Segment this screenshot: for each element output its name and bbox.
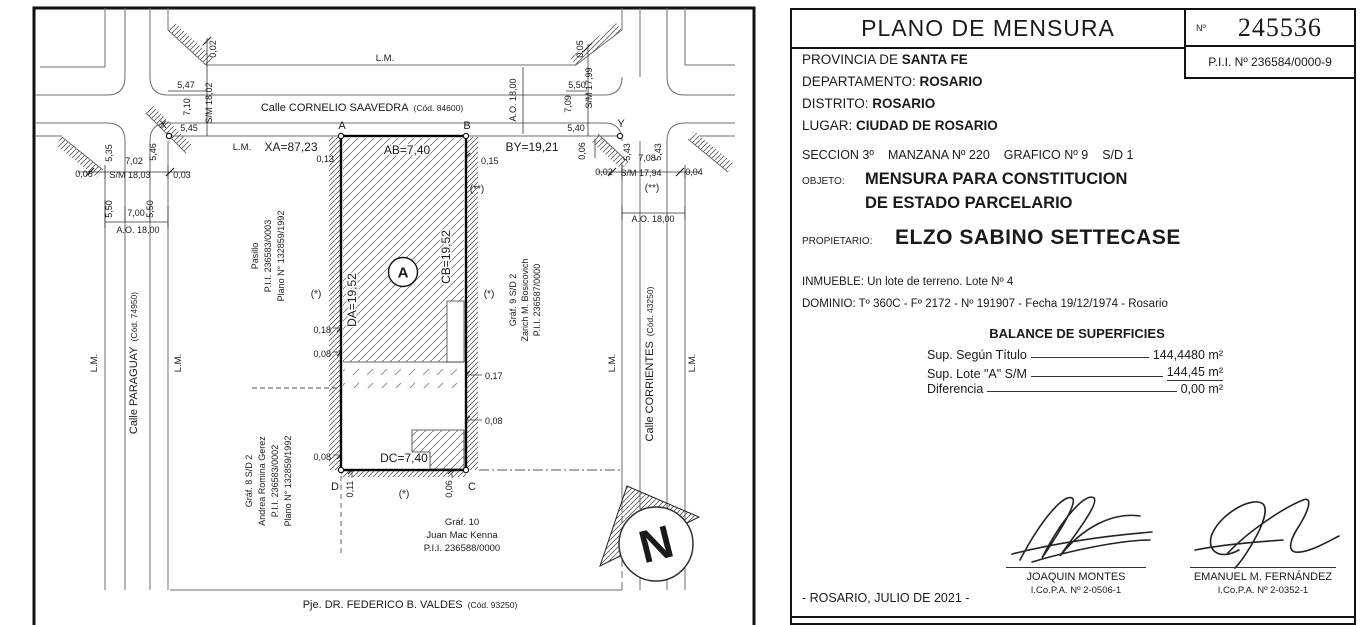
distrito-label: DISTRITO: <box>802 96 872 111</box>
provincia-value: SANTA FE <box>902 52 968 67</box>
dim-lot-tr: 0,15 <box>481 156 499 166</box>
lm-label-cor-e: L.M. <box>687 354 698 372</box>
dim-rt-3: 5,40 <box>567 123 585 133</box>
surveyor-name-montes: JOAQUIN MONTES <box>1006 571 1146 583</box>
point-d: D <box>331 481 339 493</box>
surveyor-reg-montes: I.Co.P.A. Nº 2-0506-1 <box>1006 585 1146 596</box>
balance-row-diferencia: Diferencia 0,00 m² <box>927 382 1223 396</box>
dim-e-3: 5,43 <box>653 143 663 161</box>
dim-lot-tl: 0,13 <box>316 154 334 164</box>
objeto-line1: MENSURA PARA CONSTITUCION <box>865 170 1127 189</box>
surveyor-name-fernandez: EMANUEL M. FERNÁNDEZ <box>1190 571 1336 583</box>
dim-c-ao: A.O. 18,00 <box>631 214 674 224</box>
dim-lot-l2: 0,08 <box>313 349 331 359</box>
lot-notch <box>447 301 464 362</box>
neighbor-gerez-line1: Gráf. 8 S/D 2 <box>244 455 254 508</box>
dim-rt-sm: S/M 17,99 <box>584 67 594 108</box>
point-y: Y <box>617 118 625 130</box>
neighbor-mackenna-line1: Gráf. 10 <box>445 517 479 528</box>
propietario-label: PROPIETARIO: <box>802 236 872 247</box>
dim-p-3: 5,50 <box>145 200 155 218</box>
neighbor-gerez-line3: P.I.I. 236583/0002 <box>270 445 280 517</box>
balance-title: BALANCE DE SUPERFICIES <box>892 326 1262 341</box>
neighbor-mackenna-line3: P.I.I. 236588/0000 <box>424 543 500 554</box>
lm-label-south: L.M. <box>233 142 251 153</box>
objeto-label: OBJETO: <box>802 176 845 187</box>
balance-row-diferencia-leader <box>987 391 1176 392</box>
dim-dc: DC=7,40 <box>380 451 428 465</box>
seccion-value: SECCION 3º <box>802 148 874 162</box>
mark-star-bottom: (*) <box>399 489 410 500</box>
pii-number: P.I.I. Nº 236584/0000-9 <box>1186 47 1354 77</box>
departamento-label: DEPARTAMENTO: <box>802 74 920 89</box>
dim-ab: AB=7,40 <box>384 143 431 157</box>
balance-row-titulo-label: Sup. Según Título <box>927 348 1027 362</box>
dim-e-off2: 0,04 <box>685 167 703 177</box>
surveyor-reg-fernandez: I.Co.P.A. Nº 2-0352-1 <box>1190 585 1336 596</box>
balance-row-diferencia-label: Diferencia <box>927 382 983 396</box>
point-c: C <box>468 481 476 493</box>
dim-lot-l1: 0,18 <box>313 325 331 335</box>
neighbor-bosicovich-line2: Zarich M. Bosicovich <box>520 258 530 341</box>
dim-s-ao: A.O. 18,00 <box>508 78 518 121</box>
signature-line-montes <box>1006 567 1146 568</box>
field-seccion-row: SECCION 3º MANZANA Nº 220 GRAFICO Nº 9 S… <box>802 148 1133 162</box>
lot-label: A <box>398 265 409 282</box>
dim-e-1: 5,43 <box>622 143 632 161</box>
lugar-label: LUGAR: <box>802 118 856 133</box>
survey-plan-sheet: A N Calle CORNELIO SAAVEDRA(Cód. 84600) … <box>0 0 1363 625</box>
north-compass: N <box>600 486 699 581</box>
balance-row-lote: Sup. Lote "A" S/M 144,45 m² <box>927 365 1223 381</box>
neighbor-bosicovich-line3: P.I.I. 236587/0000 <box>532 264 542 336</box>
field-departamento: DEPARTAMENTO: ROSARIO <box>802 74 983 89</box>
plan-number-box: Nº 245536 P.I.I. Nº 236584/0000-9 <box>1184 10 1354 79</box>
plan-number-value: 245536 <box>1206 13 1354 43</box>
point-b: B <box>463 120 470 132</box>
dim-lot-r1: 0,17 <box>485 371 503 381</box>
dim-lot-r2: 0,08 <box>485 416 503 426</box>
manzana-value: MANZANA Nº 220 <box>888 148 990 162</box>
mark-dstar-lot: (**) <box>470 184 484 195</box>
balance-row-titulo-leader <box>1031 357 1149 358</box>
footer-divider <box>792 616 1354 618</box>
dim-lot-br: 0,06 <box>444 480 454 498</box>
point-x: X <box>159 119 167 131</box>
dominio-line: DOMINIO: Tº 360C - Fº 2172 - Nº 191907 -… <box>802 298 1168 310</box>
lot-mid-band <box>343 362 464 388</box>
plan-number-label: Nº <box>1196 23 1206 33</box>
balance-row-lote-leader <box>1031 376 1163 377</box>
plan-number-row: Nº 245536 <box>1186 10 1354 47</box>
dim-lot-l3: 0,08 <box>313 452 331 462</box>
balance-row-diferencia-value: 0,00 m² <box>1181 382 1223 396</box>
neighbor-pasillo-line3: Plano N° 132859/1992 <box>276 211 286 302</box>
provincia-label: PROVINCIA DE <box>802 52 902 67</box>
dim-w-off2: 0,03 <box>173 170 191 180</box>
dim-by: BY=19,21 <box>505 140 558 154</box>
lot-left-wall-hatch <box>329 137 341 470</box>
distrito-value: ROSARIO <box>872 96 935 111</box>
page-title: PLANO DE MENSURA <box>792 10 1184 49</box>
neighbor-gerez-line2: Andrea Romina Gerez <box>257 436 267 526</box>
neighbor-bosicovich-line1: Gráf. 9 S/D 2 <box>508 274 518 327</box>
lm-label-cor-w: L.M. <box>607 354 618 372</box>
dim-da: DA=19,52 <box>345 273 359 327</box>
field-lugar: LUGAR: CIUDAD DE ROSARIO <box>802 118 998 133</box>
title-block: PLANO DE MENSURA Nº 245536 P.I.I. Nº 236… <box>790 8 1356 625</box>
dim-y-off: 0,06 <box>577 142 587 160</box>
lugar-value: CIUDAD DE ROSARIO <box>856 118 998 133</box>
balance-row-titulo: Sup. Según Título 144,4480 m² <box>927 348 1223 362</box>
objeto-line2: DE ESTADO PARCELARIO <box>865 194 1072 213</box>
plan-date: - ROSARIO, JULIO DE 2021 - <box>802 591 969 605</box>
dim-w-sm: S/M 18,03 <box>109 170 150 180</box>
dim-w-off1: 0,06 <box>75 169 93 179</box>
dim-p-ao: A.O. 18,00 <box>116 225 159 235</box>
dim-e-off1: 0,02 <box>595 167 613 177</box>
dim-lt-2: 7,10 <box>182 98 192 116</box>
plan-drawing: A N Calle CORNELIO SAAVEDRA(Cód. 84600) … <box>0 0 770 625</box>
street-valdes: Pje. DR. FEDERICO B. VALDES(Cód. 93250) <box>303 599 518 611</box>
dim-xa: XA=87,23 <box>264 140 317 154</box>
field-provincia: PROVINCIA DE SANTA FE <box>802 52 968 67</box>
sd-value: S/D 1 <box>1102 148 1133 162</box>
point-a: A <box>338 120 346 132</box>
propietario-value: ELZO SABINO SETTECASE <box>895 226 1181 250</box>
lm-label-pgy-w: L.M. <box>89 354 100 372</box>
dim-w-1: 5,35 <box>104 144 114 162</box>
mark-dstar-corrientes: (**) <box>645 183 659 194</box>
balance-row-lote-value: 144,45 m² <box>1167 365 1223 381</box>
dim-lot-bl: 0,11 <box>345 481 355 498</box>
inmueble-line: INMUEBLE: Un lote de terreno. Lote Nº 4 <box>802 276 1013 288</box>
dim-lt-off: 0,02 <box>208 40 218 58</box>
lm-label-pgy-e: L.M. <box>173 354 184 372</box>
dim-rt-off: 0,05 <box>575 40 585 58</box>
dim-p-2: 7,00 <box>127 208 145 218</box>
dim-e-sm: S/M 17,94 <box>620 168 661 178</box>
balance-row-lote-label: Sup. Lote "A" S/M <box>927 367 1027 381</box>
dim-lt-sm: S/M 18,02 <box>204 82 214 123</box>
lm-label-north: L.M. <box>376 53 394 64</box>
mark-star-right: (*) <box>484 289 495 300</box>
dim-lt-1: 5,47 <box>177 80 195 90</box>
neighbor-mackenna-line2: Juan Mac Kenna <box>426 530 498 541</box>
dim-p-1: 5,50 <box>104 200 114 218</box>
neighbor-pasillo-line1: Pasillo <box>250 243 260 270</box>
mark-star-left: (*) <box>311 289 322 300</box>
dim-w-3: 5,46 <box>148 143 158 161</box>
street-paraguay: Calle PARAGUAY(Cód. 74950) <box>128 292 140 434</box>
dim-cb: CB=19,52 <box>439 230 453 284</box>
balance-row-titulo-value: 144,4480 m² <box>1153 348 1223 362</box>
grafico-value: GRAFICO Nº 9 <box>1004 148 1088 162</box>
dim-w-2: 7,02 <box>125 156 143 166</box>
neighbor-gerez-line4: Plano N° 132859/1992 <box>283 436 293 527</box>
signature-fernandez <box>1187 492 1347 570</box>
street-saavedra: Calle CORNELIO SAAVEDRA(Cód. 84600) <box>261 102 464 114</box>
street-corrientes: Calle CORRIENTES(Cód. 43250) <box>644 286 656 441</box>
signature-montes <box>1002 488 1162 568</box>
dim-rt-2: 7,09 <box>563 95 573 113</box>
field-distrito: DISTRITO: ROSARIO <box>802 96 935 111</box>
signature-line-fernandez <box>1190 567 1336 568</box>
dim-x-side: 5,45 <box>180 123 198 133</box>
neighbor-pasillo-line2: P.I.I. 236583/0003 <box>263 220 273 292</box>
departamento-value: ROSARIO <box>920 74 983 89</box>
